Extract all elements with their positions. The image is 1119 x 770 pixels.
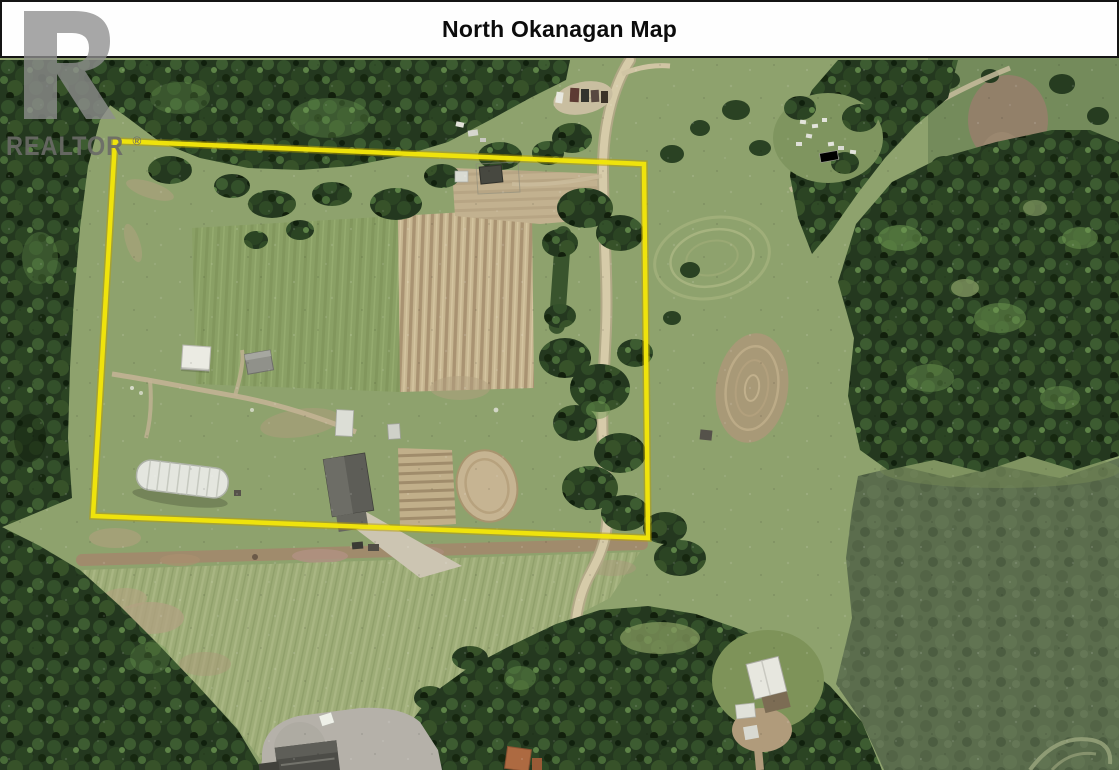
page-title: North Okanagan Map [442,16,677,43]
map-header: North Okanagan Map [0,0,1119,58]
map-area [0,58,1119,770]
photo-grain [0,58,1119,770]
listing-map-page: North Okanagan Map [0,0,1119,770]
aerial-map [0,58,1119,770]
